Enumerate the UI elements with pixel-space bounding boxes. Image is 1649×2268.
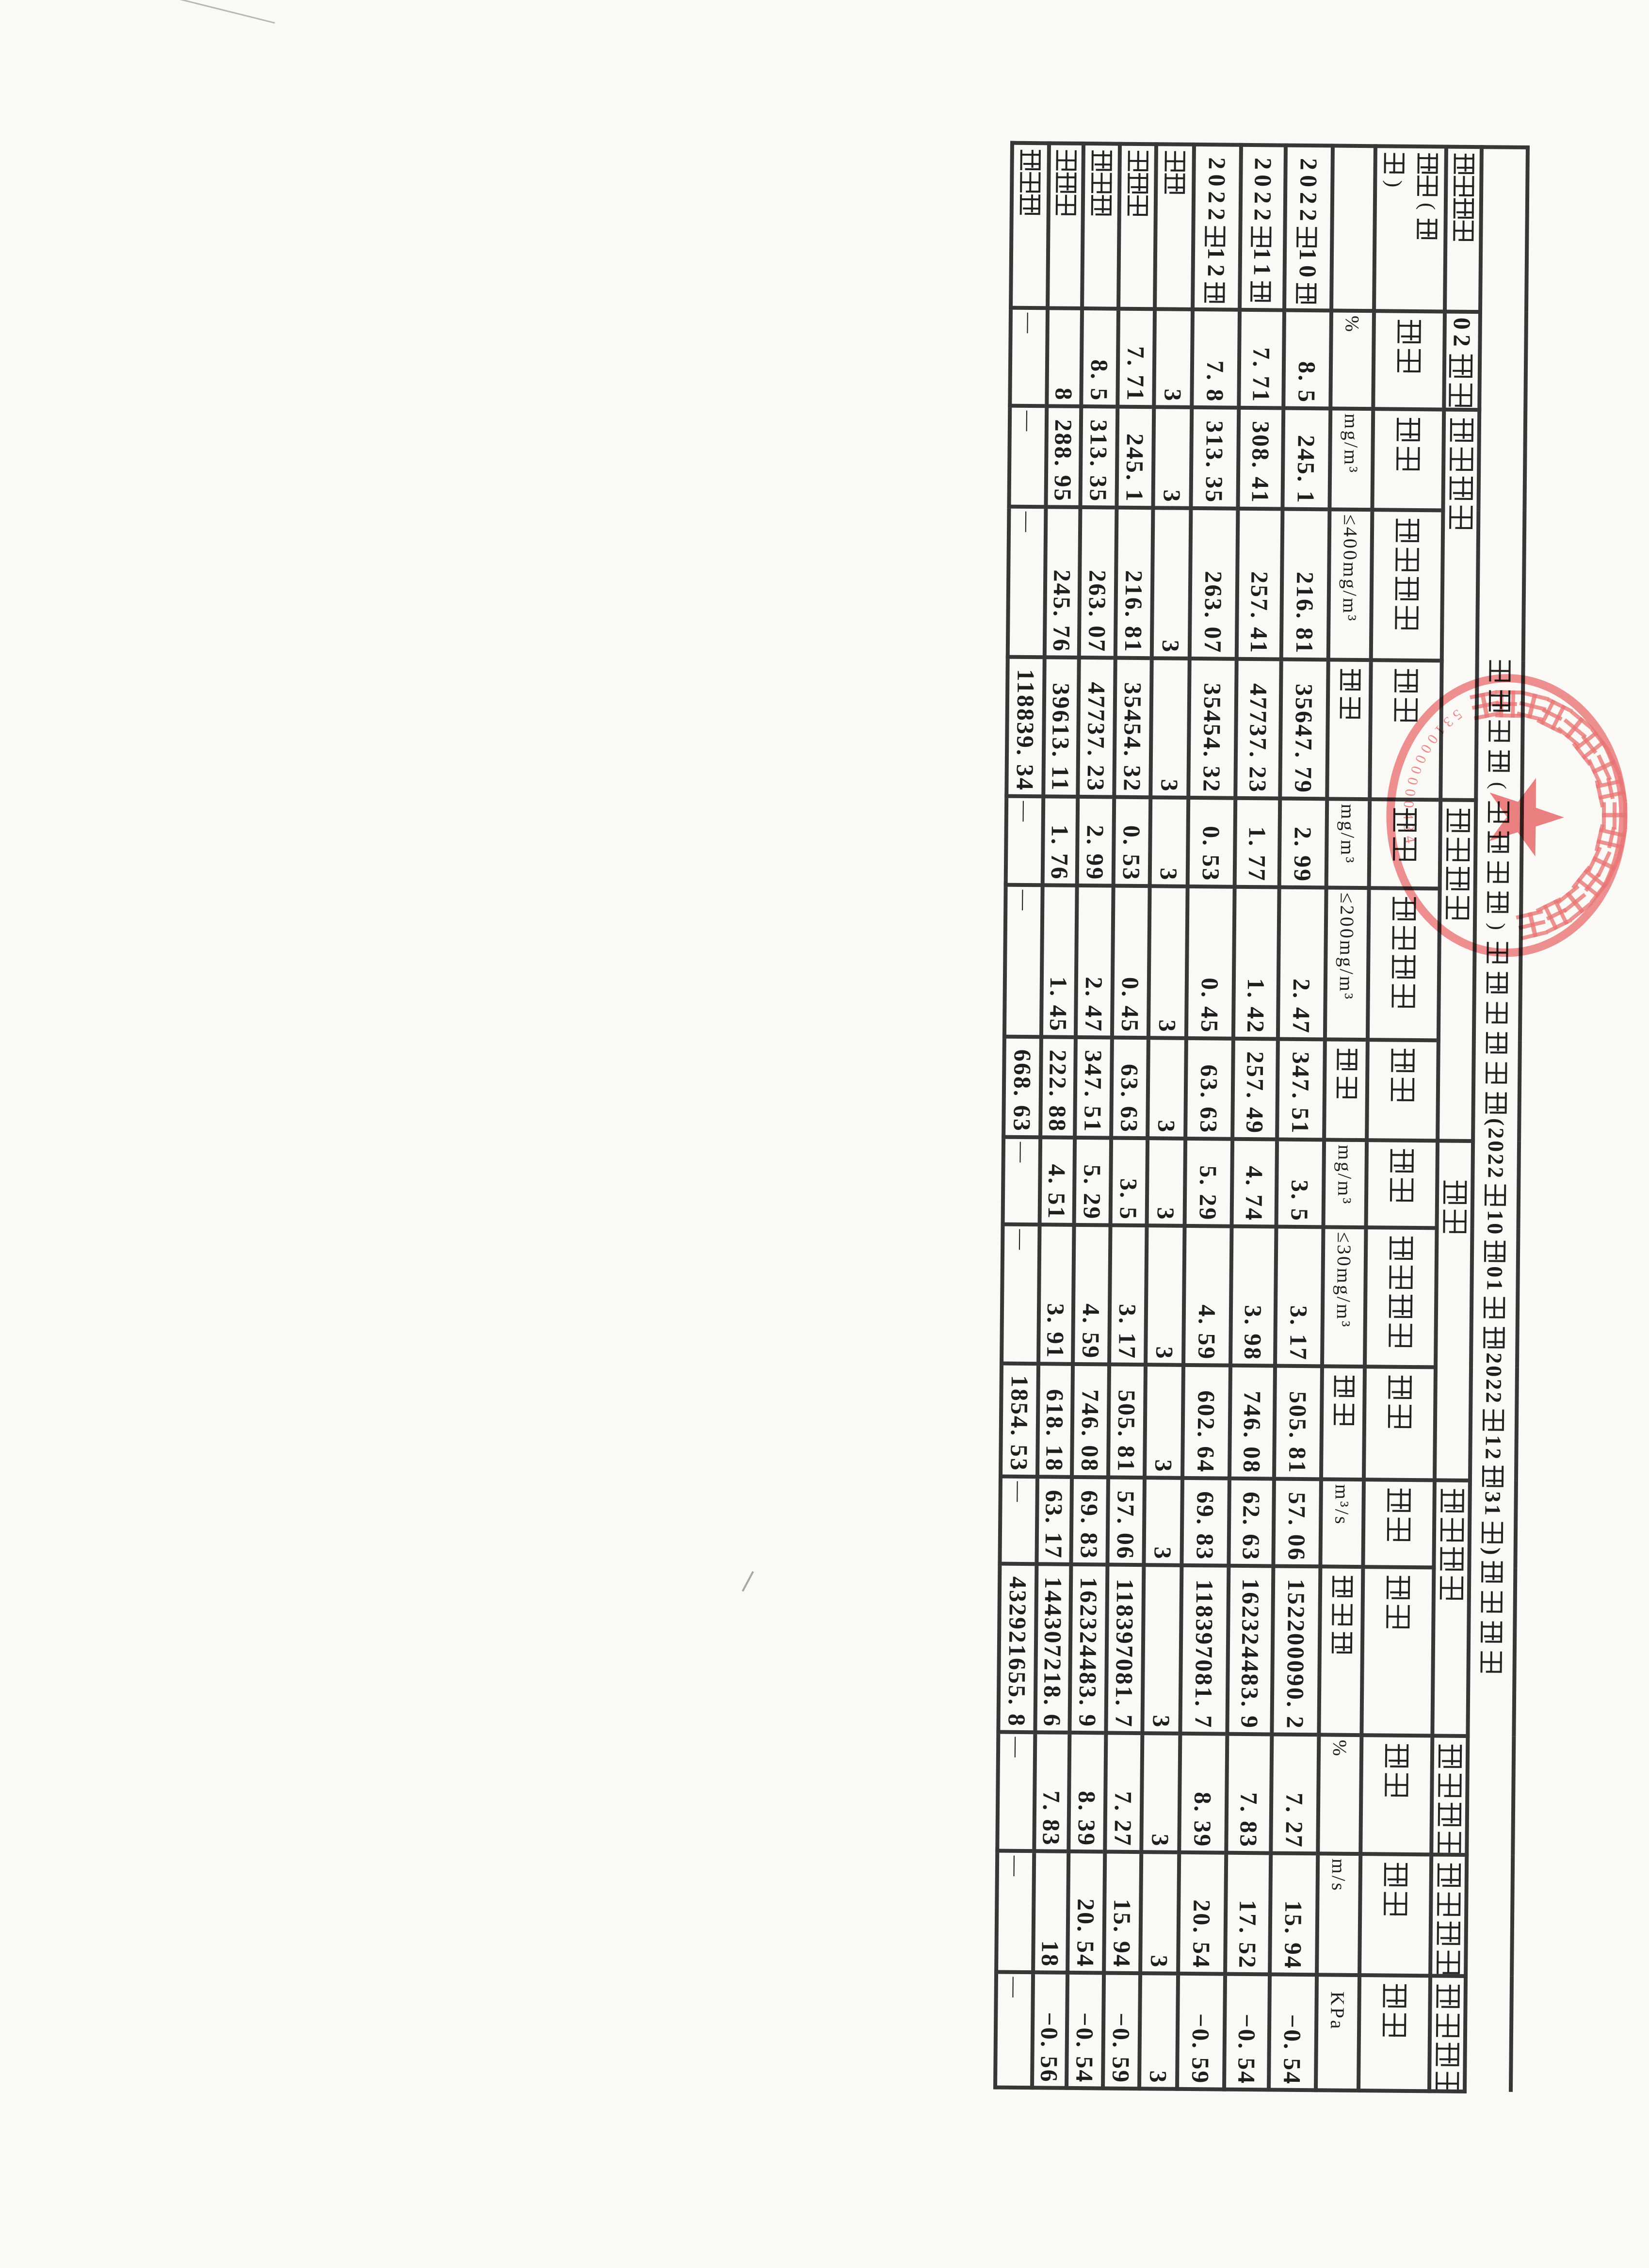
svg-text:5310000000434: 5310000000434 [1400, 706, 1465, 850]
